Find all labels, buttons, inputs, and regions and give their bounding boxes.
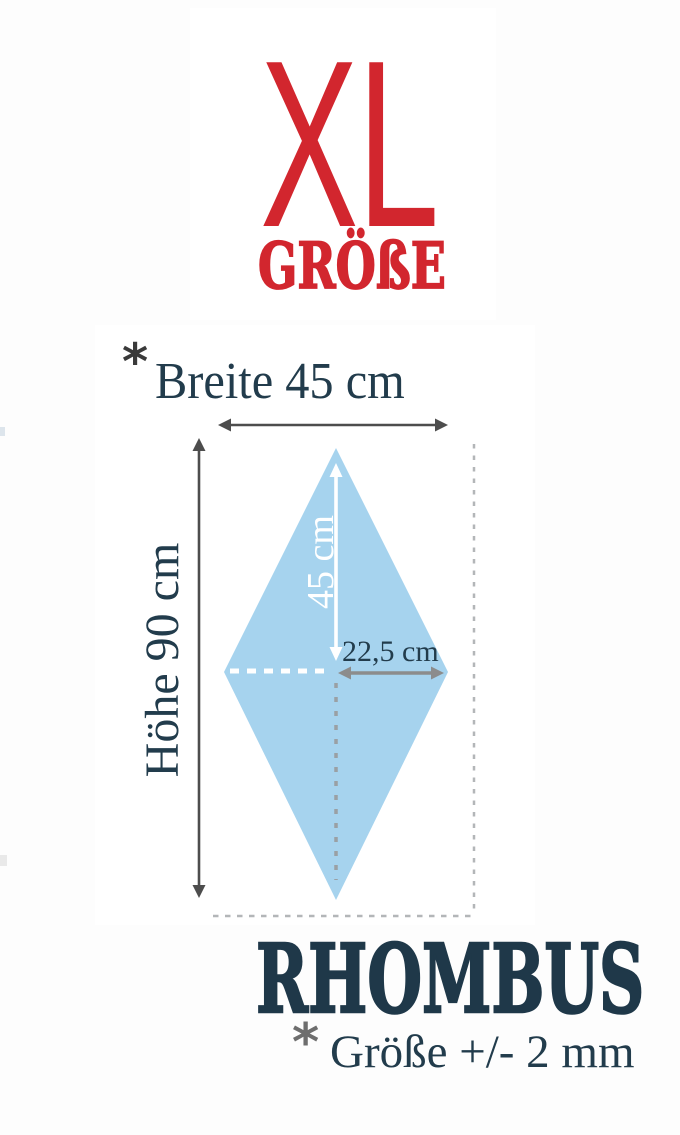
- size-chart-page: XL GRÖßE: [0, 0, 680, 1135]
- half-height-label: 45 cm: [301, 497, 341, 627]
- height-label: Höhe 90 cm: [138, 530, 188, 790]
- width-tolerance-asterisk: *: [122, 337, 148, 387]
- width-label: Breite 45 cm: [155, 356, 405, 408]
- tolerance-asterisk: *: [292, 1017, 319, 1069]
- height-arrow: [193, 438, 206, 898]
- half-width-label: 22,5 cm: [342, 637, 439, 667]
- width-arrow: [218, 419, 448, 432]
- tolerance-label: Größe +/- 2 mm: [330, 1029, 635, 1076]
